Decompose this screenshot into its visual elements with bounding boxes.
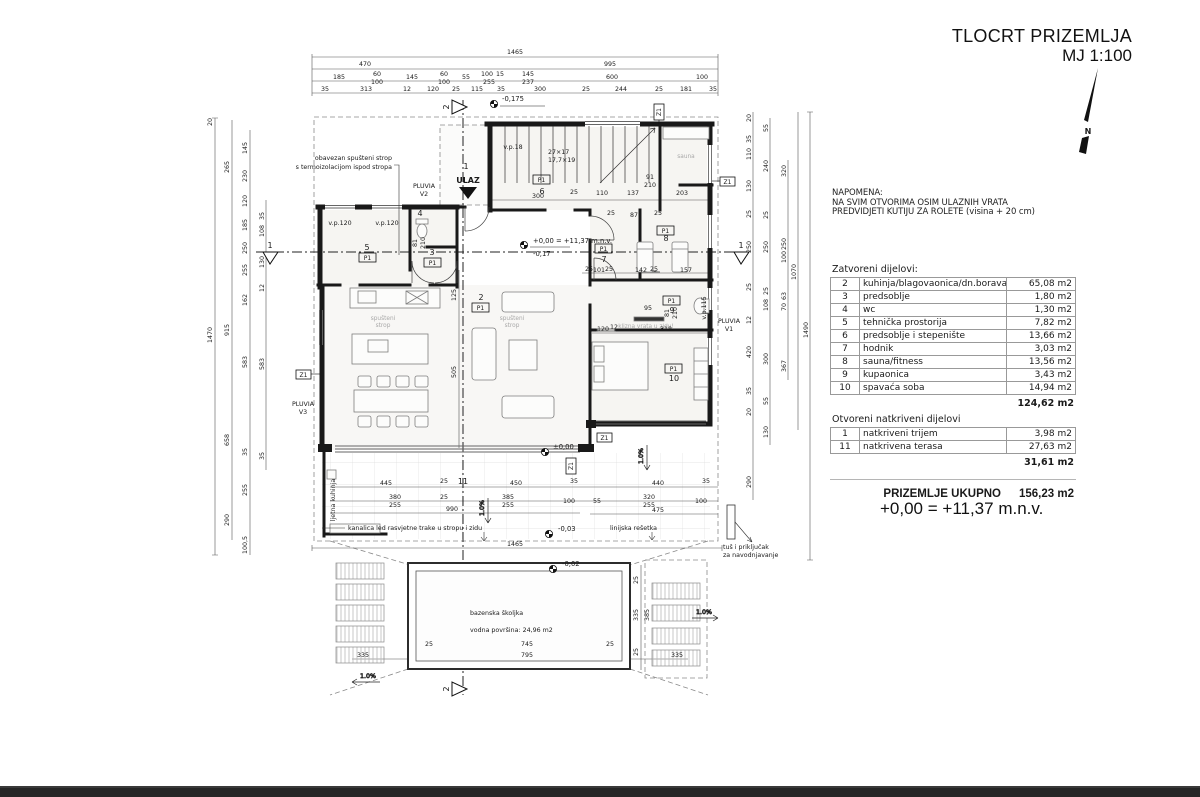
pool-water-area-label: vodna površina: 24,96 m2 bbox=[470, 626, 553, 634]
dim-label: 70 bbox=[781, 303, 788, 311]
room-area-cell: 3,43 m2 bbox=[1007, 369, 1076, 382]
dim-label: 210 bbox=[644, 182, 656, 189]
dim-label: 335 bbox=[357, 652, 369, 659]
dim-label: 320 bbox=[643, 494, 655, 501]
finish-tag: P1 bbox=[364, 255, 372, 262]
dim-label: 255 bbox=[242, 264, 249, 276]
dim-label: 20 bbox=[746, 408, 753, 416]
dining-chair bbox=[396, 376, 409, 387]
dim-label: 15 bbox=[496, 71, 504, 78]
closed-parts-total: 124,62 m2 bbox=[830, 395, 1076, 414]
room-area-cell: 3,03 m2 bbox=[1007, 343, 1076, 356]
coffee-table bbox=[509, 340, 537, 370]
dim-label: 470 bbox=[359, 61, 371, 68]
room-num-cell: 3 bbox=[831, 291, 860, 304]
dim-label: 100 bbox=[781, 251, 788, 263]
dim-label: 35 bbox=[242, 448, 249, 456]
room-name-cell: wc bbox=[860, 304, 1007, 317]
finish-tag: P1 bbox=[600, 246, 608, 253]
section-label: 1 bbox=[267, 241, 272, 250]
dim-label: 440 bbox=[652, 480, 664, 487]
areas-table-block: Zatvoreni dijelovi: 2 kuhinja/blagovaoni… bbox=[830, 264, 1076, 500]
dim-label: 35 bbox=[259, 212, 266, 220]
dim-label: 335 bbox=[671, 652, 683, 659]
summary-divider bbox=[830, 479, 1076, 480]
dim-label: 60 bbox=[373, 71, 381, 78]
drawing-scale: MJ 1:100 bbox=[900, 46, 1132, 66]
room-area-cell: 27,63 m2 bbox=[1007, 441, 1076, 454]
dim-label: 583 bbox=[259, 358, 266, 370]
dim-label: 367 bbox=[781, 360, 788, 372]
dim-label: 990 bbox=[446, 506, 458, 513]
section-2-marker-bottom bbox=[452, 682, 467, 696]
dim-label: 12 bbox=[746, 316, 753, 324]
room-area-cell: 7,82 m2 bbox=[1007, 317, 1076, 330]
dim-label: 255 bbox=[483, 79, 495, 86]
dim-label: 1465 bbox=[507, 541, 523, 548]
room-area-cell: 14,94 m2 bbox=[1007, 382, 1076, 395]
parapet-label: v.p.18 bbox=[503, 144, 522, 151]
room-name-cell: predsoblje bbox=[860, 291, 1007, 304]
dim-label: 120 bbox=[427, 86, 439, 93]
room-area-cell: 1,30 m2 bbox=[1007, 304, 1076, 317]
dim-label: 145 bbox=[522, 71, 534, 78]
dim-label: 25 bbox=[452, 86, 460, 93]
room-num-cell: 1 bbox=[831, 428, 860, 441]
level-value: +0,00 = +11,37 m.n.v. bbox=[533, 237, 612, 245]
ceiling-gray-label: spušteni bbox=[500, 315, 525, 322]
z1-label: Z1 bbox=[568, 462, 575, 470]
dim-label: 300 bbox=[763, 353, 770, 365]
dim-label: 35 bbox=[259, 452, 266, 460]
dim-label: 110 bbox=[596, 190, 608, 197]
table-row: 6 predsoblje i stepenište 13,66 m2 bbox=[831, 330, 1076, 343]
dim-label: 100 bbox=[481, 71, 493, 78]
dim-label: 35 bbox=[497, 86, 505, 93]
room-num-cell: 7 bbox=[831, 343, 860, 356]
pillow bbox=[594, 366, 604, 382]
sauna-bench bbox=[663, 127, 709, 139]
room-number: 7 bbox=[601, 255, 606, 264]
ceiling-note: obavezan spušteni strop bbox=[315, 154, 392, 162]
room-name-cell: spavaća soba bbox=[860, 382, 1007, 395]
open-parts-total: 31,61 m2 bbox=[830, 454, 1076, 473]
ceiling-gray-label: strop bbox=[505, 323, 520, 329]
dim-label: 420 bbox=[746, 346, 753, 358]
dim-label: 63 bbox=[781, 292, 788, 300]
table-row: 1 natkriveni trijem 3,98 m2 bbox=[831, 428, 1076, 441]
finish-tag: P1 bbox=[668, 298, 676, 305]
shower-irrigation-note: za navodnjavanje bbox=[723, 552, 779, 559]
pluvia-label: PLUVIA bbox=[718, 318, 741, 325]
dim-label: 55 bbox=[763, 397, 770, 405]
dim-label: 25 bbox=[425, 641, 433, 648]
dim-label: 1470 bbox=[207, 327, 214, 343]
room-num-cell: 4 bbox=[831, 304, 860, 317]
dining-table bbox=[354, 390, 428, 412]
dining-chair bbox=[415, 416, 428, 427]
dim-label: 313 bbox=[360, 86, 372, 93]
dim-label: 25 bbox=[633, 648, 640, 656]
dim-label: 240 bbox=[763, 160, 770, 172]
room-name-cell: predsoblje i stepenište bbox=[860, 330, 1007, 343]
dim-label: 162 bbox=[242, 294, 249, 306]
note-line: PREDVIDJETI KUTIJU ZA ROLETE (visina + 2… bbox=[832, 208, 1035, 218]
open-parts-table: 1 natkriveni trijem 3,98 m2 11 natkriven… bbox=[830, 427, 1076, 454]
dim-label: 125 bbox=[451, 289, 458, 301]
north-arrow-icon: N bbox=[1079, 68, 1098, 154]
dim-label: 55 bbox=[593, 498, 601, 505]
room-num-cell: 6 bbox=[831, 330, 860, 343]
table-row: 2 kuhinja/blagovaonica/dn.boravak 65,08 … bbox=[831, 278, 1076, 291]
dim-label: 35 bbox=[746, 387, 753, 395]
dim-label: 505 bbox=[451, 366, 458, 378]
room-num-cell: 5 bbox=[831, 317, 860, 330]
dim-label: 1465 bbox=[507, 49, 523, 56]
linear-grate-note: linijska rešetka bbox=[610, 524, 657, 532]
dim-label: 250 bbox=[242, 242, 249, 254]
slope-label: 1.0% bbox=[479, 500, 486, 516]
island-sink bbox=[368, 340, 388, 352]
level-marker-icon bbox=[541, 448, 548, 455]
room-num-cell: 8 bbox=[831, 356, 860, 369]
led-strip-note: kanalica led rasvjetne trake u stropu i … bbox=[348, 525, 482, 532]
parapet-label: v.p.120 bbox=[375, 220, 398, 227]
room-num-cell: 10 bbox=[831, 382, 860, 395]
dim-label: 35 bbox=[746, 135, 753, 143]
table-row: 5 tehnička prostorija 7,82 m2 bbox=[831, 317, 1076, 330]
room-name-cell: natkrivena terasa bbox=[860, 441, 1007, 454]
dim-label: 87 bbox=[630, 212, 638, 219]
dim-label: 25 bbox=[440, 478, 448, 485]
room-num-cell: 9 bbox=[831, 369, 860, 382]
summer-kitchen-label: ljetna kuhinja bbox=[330, 479, 337, 522]
stair-dims-label: 17,7×19 bbox=[548, 157, 575, 164]
dim-label: 475 bbox=[652, 507, 664, 514]
dim-label: 237 bbox=[522, 79, 534, 86]
dim-label: 20 bbox=[207, 118, 214, 126]
dim-label: 115 bbox=[471, 86, 483, 93]
room-name-cell: natkriveni trijem bbox=[860, 428, 1007, 441]
toilet bbox=[417, 224, 427, 238]
dim-label: 100,5 bbox=[242, 536, 249, 554]
room-number: 1 bbox=[463, 162, 468, 171]
dining-chair bbox=[396, 416, 409, 427]
level-marker-icon bbox=[520, 241, 527, 248]
dim-label: 255 bbox=[389, 502, 401, 509]
pool: bazenska školjka vodna površina: 24,96 m… bbox=[408, 563, 630, 669]
dim-label: 100 bbox=[695, 498, 707, 505]
toilet-tank bbox=[416, 219, 428, 224]
dim-label: 110 bbox=[746, 148, 753, 160]
level-value: -0,17 bbox=[533, 250, 551, 258]
dim-label: 108 bbox=[763, 299, 770, 311]
z1-label: Z1 bbox=[656, 108, 663, 116]
slope-label: 1.0% bbox=[638, 448, 645, 464]
dim-label: 55 bbox=[763, 124, 770, 132]
ceiling-gray-label: strop bbox=[376, 323, 391, 329]
dining-chair bbox=[358, 376, 371, 387]
level-value: ±0,00 bbox=[553, 443, 574, 451]
level-value: -0,02 bbox=[562, 560, 580, 568]
room-name-cell: kupaonica bbox=[860, 369, 1007, 382]
level-value: -0,03 bbox=[558, 525, 576, 533]
dim-label: 25 bbox=[582, 86, 590, 93]
finish-tag: P1 bbox=[477, 305, 485, 312]
dim-label: 250 bbox=[781, 238, 788, 250]
finish-tag: P1 bbox=[538, 177, 546, 184]
dim-label: 12 bbox=[610, 324, 618, 331]
table-row: 11 natkrivena terasa 27,63 m2 bbox=[831, 441, 1076, 454]
drawing-title: TLOCRT PRIZEMLJA bbox=[900, 26, 1132, 46]
dim-label: 25 bbox=[746, 210, 753, 218]
dim-label: 658 bbox=[224, 434, 231, 446]
dim-label: 108 bbox=[259, 225, 266, 237]
dim-label: 255 bbox=[242, 484, 249, 496]
dim-label: 130 bbox=[763, 426, 770, 438]
sofa bbox=[502, 292, 554, 312]
table-row: 7 hodnik 3,03 m2 bbox=[831, 343, 1076, 356]
closed-parts-heading: Zatvoreni dijelovi: bbox=[832, 264, 1076, 275]
table-row: 10 spavaća soba 14,94 m2 bbox=[831, 382, 1076, 395]
kitchen-sink bbox=[358, 291, 376, 303]
outdoor-sink bbox=[327, 470, 336, 479]
pluvia-id: V3 bbox=[299, 409, 307, 416]
title-block: TLOCRT PRIZEMLJA MJ 1:100 bbox=[900, 26, 1132, 66]
dim-label: 12 bbox=[259, 284, 266, 292]
dim-label: 210 bbox=[420, 237, 427, 249]
dim-label: 203 bbox=[676, 190, 688, 197]
dim-label: 120 bbox=[597, 326, 609, 333]
dim-label: 745 bbox=[521, 641, 533, 648]
dim-label: 100 bbox=[696, 74, 708, 81]
room-num-cell: 11 bbox=[831, 441, 860, 454]
dim-label: 25 bbox=[570, 189, 578, 196]
room-name-cell: hodnik bbox=[860, 343, 1007, 356]
dim-label: 583 bbox=[242, 356, 249, 368]
dim-label: 55 bbox=[462, 74, 470, 81]
dim-label: 25 bbox=[606, 641, 614, 648]
shower-irrigation-note: tuš i priključak bbox=[723, 543, 769, 551]
dim-label: 25 bbox=[746, 283, 753, 291]
parapet-label: v.p.115 bbox=[701, 296, 708, 319]
dim-label: 91 bbox=[646, 174, 654, 181]
dim-label: 335 bbox=[633, 609, 640, 621]
dim-label: 795 bbox=[521, 652, 533, 659]
entrance-label: ULAZ bbox=[456, 176, 480, 185]
room-name-cell: tehnička prostorija bbox=[860, 317, 1007, 330]
section-2-marker-top bbox=[452, 100, 467, 114]
room-number: 11 bbox=[458, 477, 468, 486]
sofa bbox=[472, 328, 496, 380]
dim-label: 25 bbox=[763, 211, 770, 219]
dim-label: 25 bbox=[585, 266, 593, 273]
dim-label: 25 bbox=[655, 86, 663, 93]
pluvia-id: V1 bbox=[725, 326, 733, 333]
dim-label: 320 bbox=[781, 165, 788, 177]
dim-label: 230 bbox=[242, 170, 249, 182]
dim-label: 120 bbox=[242, 195, 249, 207]
room-number: 5 bbox=[364, 243, 369, 252]
dim-label: 100 bbox=[438, 79, 450, 86]
dim-label: 995 bbox=[604, 61, 616, 68]
room-number: 3 bbox=[429, 248, 434, 257]
finish-tag: P1 bbox=[670, 366, 678, 373]
dim-label: 142 bbox=[635, 267, 647, 274]
slope-label: 1.0% bbox=[360, 673, 376, 680]
dim-label: 35 bbox=[709, 86, 717, 93]
washbasin-counter bbox=[634, 317, 664, 321]
room-name-cell: sauna/fitness bbox=[860, 356, 1007, 369]
room-number: 10 bbox=[669, 374, 679, 383]
dim-label: 300 bbox=[532, 193, 544, 200]
dim-label: 81 bbox=[664, 309, 671, 317]
dim-label: 35 bbox=[702, 478, 710, 485]
room-area-cell: 65,08 m2 bbox=[1007, 278, 1076, 291]
table-row: 8 sauna/fitness 13,56 m2 bbox=[831, 356, 1076, 369]
room-area-cell: 3,98 m2 bbox=[1007, 428, 1076, 441]
ceiling-gray-label: spušteni bbox=[371, 315, 396, 322]
dim-label: 12 bbox=[403, 86, 411, 93]
pluvia-label: PLUVIA bbox=[292, 401, 315, 408]
closed-parts-table: 2 kuhinja/blagovaonica/dn.boravak 65,08 … bbox=[830, 277, 1076, 395]
ceiling-note: s termoizolacijom ispod stropa bbox=[296, 164, 392, 171]
dim-label: 95 bbox=[644, 305, 652, 312]
room-number: 8 bbox=[663, 234, 668, 243]
dim-label: 145 bbox=[242, 142, 249, 154]
dining-chair bbox=[377, 416, 390, 427]
table-row: 3 predsoblje 1,80 m2 bbox=[831, 291, 1076, 304]
room-area-cell: 1,80 m2 bbox=[1007, 291, 1076, 304]
kitchen-island bbox=[352, 334, 428, 364]
dim-label: 600 bbox=[606, 74, 618, 81]
dim-label: 60 bbox=[440, 71, 448, 78]
note-block: NAPOMENA: NA SVIM OTVORIMA OSIM ULAZNIH … bbox=[832, 189, 1035, 218]
dim-label: 244 bbox=[615, 86, 627, 93]
z1-label: Z1 bbox=[724, 179, 732, 186]
z1-label: Z1 bbox=[300, 372, 308, 379]
dim-label: 380 bbox=[389, 494, 401, 501]
sofa bbox=[502, 396, 554, 418]
dining-chair bbox=[415, 376, 428, 387]
pluvia-label: PLUVIA bbox=[413, 183, 436, 190]
level-marker-icon bbox=[545, 530, 552, 537]
table-row: 4 wc 1,30 m2 bbox=[831, 304, 1076, 317]
level-value: -0,175 bbox=[502, 95, 524, 103]
dim-label: 300 bbox=[534, 86, 546, 93]
dim-label: 25 bbox=[607, 210, 615, 217]
dim-label: 25 bbox=[440, 494, 448, 501]
slope-label: 1.0% bbox=[696, 609, 712, 616]
level-marker-icon bbox=[490, 100, 497, 107]
dim-label: 25 bbox=[654, 210, 662, 217]
room-number: 4 bbox=[417, 209, 422, 218]
z1-label: Z1 bbox=[601, 435, 609, 442]
section-label: 2 bbox=[442, 104, 451, 109]
dim-label: 185 bbox=[242, 219, 249, 231]
room-area-cell: 13,66 m2 bbox=[1007, 330, 1076, 343]
dim-label: 185 bbox=[333, 74, 345, 81]
dim-label: 35 bbox=[570, 478, 578, 485]
dim-label: 290 bbox=[746, 476, 753, 488]
dining-chair bbox=[358, 416, 371, 427]
dim-label: 445 bbox=[380, 480, 392, 487]
sauna-cabin-label: sauna bbox=[677, 154, 695, 160]
dim-label: 137 bbox=[627, 190, 639, 197]
dim-label: 915 bbox=[224, 324, 231, 336]
dim-label: 157 bbox=[680, 267, 692, 274]
pluvia-id: V2 bbox=[420, 191, 428, 198]
dim-label: 101 bbox=[593, 267, 605, 274]
room-name-cell: kuhinja/blagovaonica/dn.boravak bbox=[860, 278, 1007, 291]
dim-label: 20 bbox=[746, 114, 753, 122]
dim-label: 290 bbox=[224, 514, 231, 526]
dim-label: 1490 bbox=[803, 322, 810, 338]
room-number: 2 bbox=[478, 293, 483, 302]
dim-label: 265 bbox=[224, 161, 231, 173]
parapet-label: v.p.120 bbox=[328, 220, 351, 227]
level-marker-icon bbox=[549, 565, 556, 572]
dim-label: 450 bbox=[510, 480, 522, 487]
finish-tag: P1 bbox=[429, 260, 437, 267]
dim-label: 210 bbox=[672, 307, 679, 319]
irrigation-standpipe bbox=[727, 505, 735, 539]
dim-label: 1070 bbox=[791, 264, 798, 280]
dim-label: 25 bbox=[650, 266, 658, 273]
table-row: 9 kupaonica 3,43 m2 bbox=[831, 369, 1076, 382]
dim-label: 35 bbox=[321, 86, 329, 93]
dim-label: 25 bbox=[763, 287, 770, 295]
dim-label: 25 bbox=[633, 576, 640, 584]
open-parts-heading: Otvoreni natkriveni dijelovi bbox=[832, 414, 1076, 425]
dining-chair bbox=[377, 376, 390, 387]
dim-label: 181 bbox=[680, 86, 692, 93]
dim-label: 250 bbox=[763, 241, 770, 253]
pillow bbox=[594, 346, 604, 362]
page-footer-bar bbox=[0, 786, 1200, 797]
dim-label: 25 bbox=[605, 266, 613, 273]
stair-dims-label: 27×17 bbox=[548, 149, 569, 156]
dim-label: 130 bbox=[259, 256, 266, 268]
room-num-cell: 2 bbox=[831, 278, 860, 291]
dim-label: 255 bbox=[502, 502, 514, 509]
dim-label: 385 bbox=[502, 494, 514, 501]
room-area-cell: 13,56 m2 bbox=[1007, 356, 1076, 369]
dim-label: 100 bbox=[371, 79, 383, 86]
dim-label: 318 bbox=[660, 326, 672, 333]
dim-label: 81 bbox=[412, 239, 419, 247]
dim-label: 130 bbox=[746, 180, 753, 192]
dim-label: 145 bbox=[406, 74, 418, 81]
section-label: 1 bbox=[738, 241, 743, 250]
dim-label: 250 bbox=[746, 241, 753, 253]
dim-label: 385 bbox=[644, 609, 651, 621]
pool-label: bazenska školjka bbox=[470, 609, 523, 617]
dim-label: 100 bbox=[563, 498, 575, 505]
datum-note: +0,00 = +11,37 m.n.v. bbox=[880, 499, 1043, 519]
north-letter: N bbox=[1085, 127, 1092, 136]
section-label: 2 bbox=[442, 686, 451, 691]
